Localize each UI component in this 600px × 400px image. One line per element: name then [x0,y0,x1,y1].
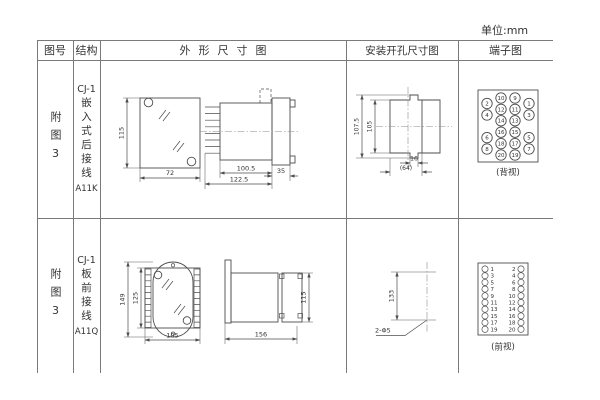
terminal-number: 4 [512,274,516,280]
terminal-circle [518,293,524,299]
terminal-circle [518,273,524,279]
holes-label: 2-Φ5 [375,327,391,335]
terminal-circle [518,306,524,312]
view-label-front: (前视) [491,342,515,353]
screw-hole [183,317,191,325]
terminal-number: 9 [491,294,495,300]
dim-115: 115 [300,291,308,303]
row1-structure-desc: 嵌入式后接线 [79,97,94,181]
terminal-circle [482,313,488,319]
terminal-number: 6 [512,280,516,286]
row2-structure-cell: CJ-1 板前接线 A11Q [73,218,100,373]
terminal-number: 3 [491,274,495,280]
screw-hole [154,271,162,279]
plate-mounting-hole [171,264,174,267]
dim-149: 149 [119,293,127,305]
terminal-number: 18 [509,321,516,327]
row1-code: A11K [75,184,97,194]
terminal-number: 19 [512,153,519,159]
terminal-number: 1 [491,267,495,273]
row2-terminal-diagram: 1 3 5 7 9 11 13 15 17 19 2 4 6 8 10 12 1… [458,218,553,375]
dim-72: 72 [166,169,174,177]
terminal-circle [518,286,524,292]
terminal-number: 7 [527,147,531,153]
terminal-number: 19 [491,327,498,333]
terminal-circle [482,286,488,292]
terminal-circle [518,326,524,332]
front-flange [225,260,231,323]
terminal-number: 11 [512,107,519,113]
terminal-circle [482,306,488,312]
terminal-circle [518,279,524,285]
terminal-number: 14 [509,307,516,313]
terminal-number: 20 [498,153,505,159]
relay-body-side [231,273,278,322]
glass-hatch-marks [159,110,184,152]
dim-100-5: 100.5 [237,165,256,173]
terminal-number: 10 [509,294,516,300]
header-fig-no: 图号 [37,41,73,59]
terminal-circle [482,293,488,299]
dim-105: 105 [166,332,178,340]
terminal-circle [518,299,524,305]
hidden-part-dashed [260,89,271,103]
dim-125: 125 [132,292,140,304]
view-label-rear: (背视) [496,167,520,178]
row1-mounting-drawing: 107.5 105 16 (64) [346,60,458,218]
terminal-strip-left-dividers [145,275,151,322]
extension-lines [225,273,313,344]
dim-156: 156 [255,331,267,339]
row2-model: CJ-1 [77,255,96,266]
terminal-circle [482,299,488,305]
row1-structure-cell: CJ-1 嵌入式后接线 A11K [73,60,100,218]
terminal-number: 9 [513,96,517,102]
terminal-number: 8 [485,147,489,153]
terminal-circle [518,266,524,272]
dim-122-5: 122.5 [230,176,249,184]
header-mounting: 安装开孔尺寸图 [346,41,458,59]
row1-model: CJ-1 [77,84,96,95]
terminal-number: 15 [491,314,498,320]
row2-fig-no-cell: 附图3 [37,218,73,373]
row1-fig-no: 附图3 [47,111,63,167]
terminal-circle [482,273,488,279]
header-structure: 结构 [73,41,100,59]
document-page: 单位:mm 图号 结构 外形尺寸图 安装开孔尺寸图 端子图 附图3 CJ-1 嵌… [0,0,600,400]
terminal-number: 13 [491,307,498,313]
row2-mounting-drawing: 133 2-Φ5 [346,218,458,375]
terminal-number: 15 [512,130,519,136]
terminal-number: 2 [512,267,516,273]
terminal-number: 7 [491,287,495,293]
terminal-number: 3 [527,113,531,119]
terminal-number: 18 [498,142,505,148]
terminal-number: 4 [485,113,489,119]
header-terminal: 端子图 [458,41,553,59]
terminal-strip-right-dividers [194,275,200,322]
terminal-circle [482,279,488,285]
terminal-number: 13 [512,119,519,125]
extension-lines [123,98,200,182]
terminal-number: 5 [527,136,531,142]
flange-tab [290,100,295,107]
terminal-circle [482,320,488,326]
dim-64: (64) [400,165,412,172]
terminal-number: 17 [512,142,519,148]
row2-code: A11Q [75,327,98,337]
terminal-number: 20 [509,327,516,333]
terminal-number: 8 [512,287,516,293]
terminal-number: 16 [509,314,516,320]
screw-hole [187,157,196,166]
dim-133: 133 [388,290,396,302]
row1-outline-drawing: 115 72 100.5 122.5 35 [100,60,346,218]
dim-107-5: 107.5 [354,118,361,135]
row1-terminal-diagram: 2 4 6 8 10 12 14 16 18 20 9 11 13 15 17 … [458,60,553,218]
terminal-number: 2 [485,101,489,107]
dim-115: 115 [118,127,126,139]
flange-tab [290,156,295,163]
terminal-number: 1 [527,101,531,107]
row2-structure-desc: 板前接线 [79,268,94,324]
terminal-circle [482,266,488,272]
terminal-number: 6 [485,136,489,142]
terminal-number: 10 [498,96,505,102]
extension-lines [391,272,436,320]
terminal-number: 17 [491,321,498,327]
terminal-circle [518,313,524,319]
terminal-pins [205,107,220,153]
glass-hatch-marks [162,279,185,315]
extension-lines [356,95,422,176]
terminal-circle [518,320,524,326]
mounting-plate-outline [153,262,193,337]
row2-fig-no: 附图3 [47,268,63,324]
header-outline: 外形尺寸图 [100,41,346,59]
unit-label: 单位:mm [481,22,528,38]
screw-hole [144,98,153,107]
dim-16: 16 [410,156,418,163]
terminal-number: 12 [498,107,505,113]
terminal-circle [482,326,488,332]
terminal-number: 5 [491,280,495,286]
terminal-number: 12 [509,301,516,307]
row2-outline-drawing: 149 125 105 115 156 [100,218,346,375]
terminal-number: 16 [498,130,505,136]
row1-fig-no-cell: 附图3 [37,60,73,218]
dim-35: 35 [277,167,285,175]
dim-105: 105 [367,121,374,133]
terminal-number: 14 [498,119,505,125]
terminal-number: 11 [491,301,498,307]
